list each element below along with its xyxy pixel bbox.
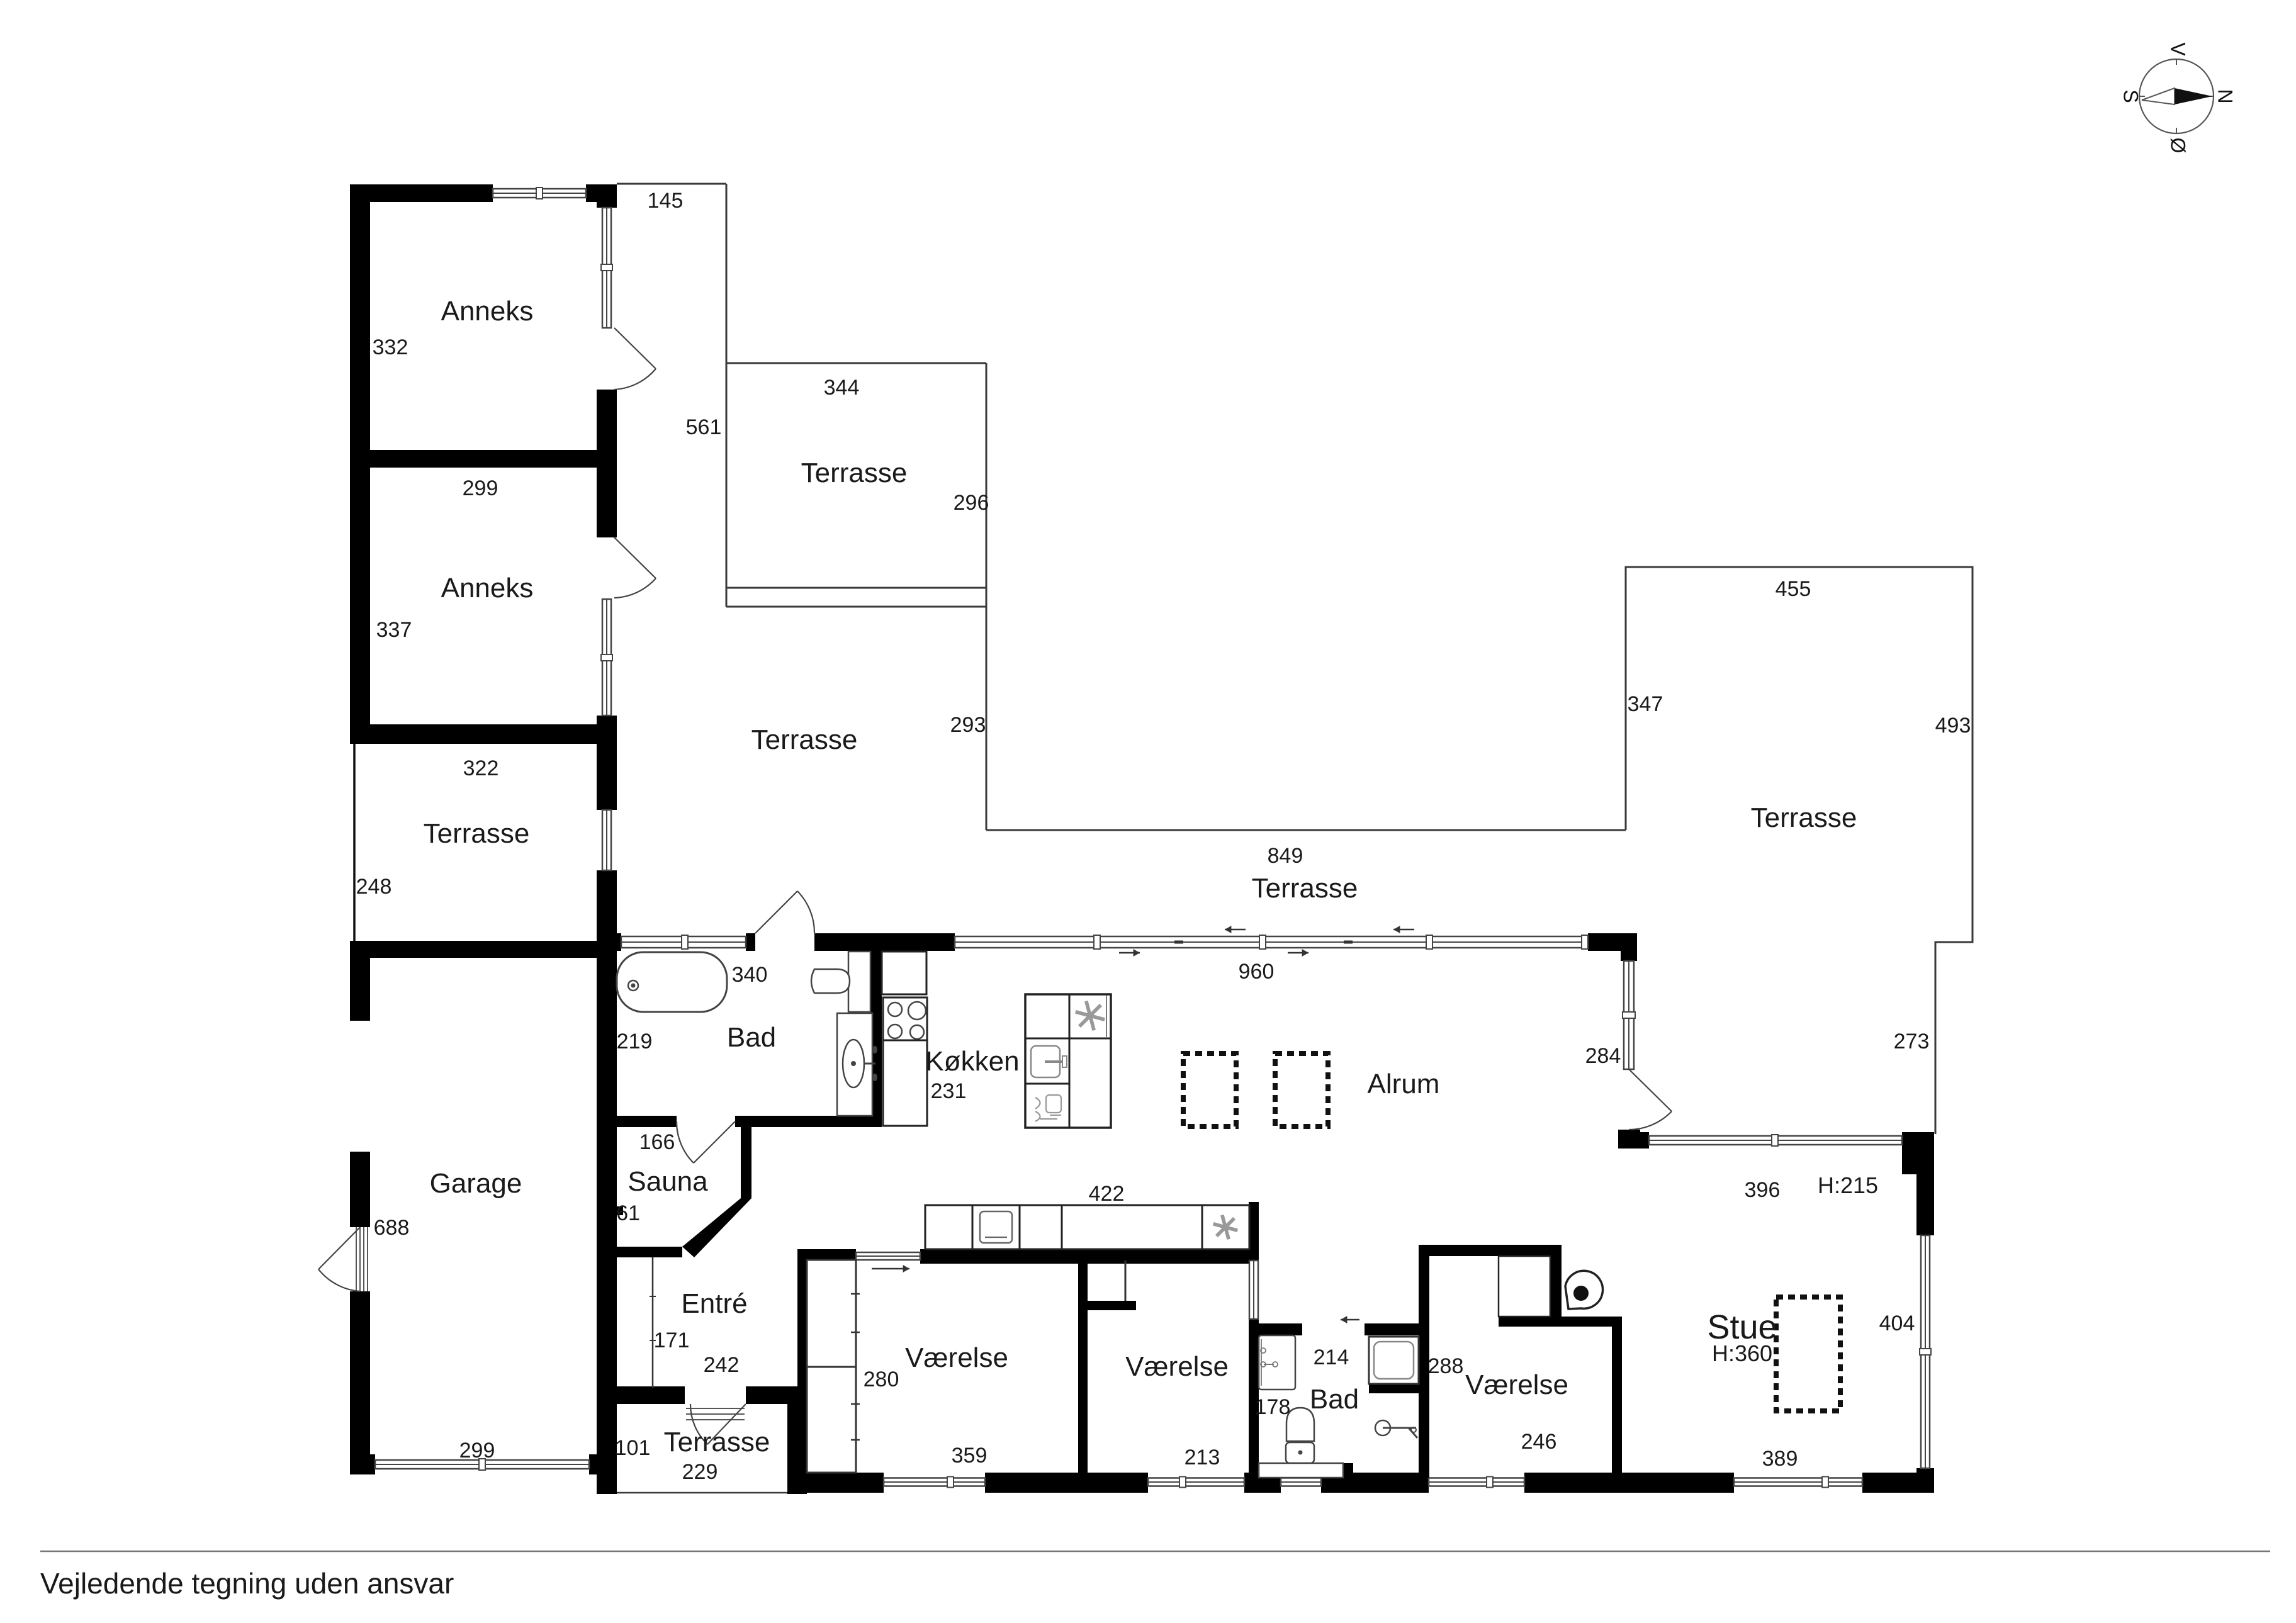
svg-text:Køkken: Køkken: [925, 1046, 1019, 1077]
svg-text:Vejledende tegning uden ansvar: Vejledende tegning uden ansvar: [40, 1567, 454, 1600]
svg-text:299: 299: [463, 476, 498, 500]
svg-text:Terrasse: Terrasse: [664, 1427, 770, 1457]
svg-text:359: 359: [952, 1444, 988, 1468]
svg-text:396: 396: [1745, 1178, 1781, 1202]
svg-text:Anneks: Anneks: [441, 573, 534, 604]
svg-text:688: 688: [374, 1216, 410, 1240]
svg-text:H:360: H:360: [1712, 1340, 1772, 1366]
svg-text:280: 280: [864, 1367, 899, 1391]
svg-text:Alrum: Alrum: [1368, 1069, 1440, 1099]
svg-text:242: 242: [704, 1353, 740, 1377]
svg-text:288: 288: [1428, 1354, 1464, 1378]
svg-text:344: 344: [824, 376, 860, 400]
svg-text:455: 455: [1775, 577, 1811, 601]
svg-text:389: 389: [1762, 1447, 1798, 1471]
svg-text:145: 145: [648, 189, 684, 213]
svg-text:273: 273: [1894, 1030, 1930, 1053]
svg-text:960: 960: [1239, 960, 1275, 984]
svg-text:171: 171: [654, 1328, 690, 1352]
svg-text:S: S: [2120, 89, 2142, 103]
svg-text:101: 101: [615, 1436, 651, 1460]
svg-text:332: 332: [373, 335, 408, 359]
svg-text:Terrasse: Terrasse: [1252, 873, 1358, 904]
svg-text:Værelse: Værelse: [1125, 1351, 1229, 1382]
svg-text:284: 284: [1585, 1044, 1621, 1068]
svg-text:Værelse: Værelse: [1465, 1369, 1568, 1400]
svg-text:219: 219: [617, 1030, 653, 1053]
svg-text:Entré: Entré: [681, 1288, 747, 1319]
svg-text:V: V: [2167, 42, 2190, 56]
svg-text:Ø: Ø: [2167, 138, 2190, 154]
svg-text:347: 347: [1628, 692, 1663, 716]
svg-text:561: 561: [686, 415, 722, 439]
svg-text:Sauna: Sauna: [627, 1166, 708, 1197]
svg-text:Terrasse: Terrasse: [1751, 802, 1857, 833]
svg-text:337: 337: [376, 618, 412, 642]
svg-text:166: 166: [639, 1130, 675, 1154]
svg-text:229: 229: [682, 1460, 718, 1484]
svg-text:H:215: H:215: [1818, 1172, 1878, 1198]
svg-text:849: 849: [1268, 844, 1303, 868]
svg-text:Terrasse: Terrasse: [751, 724, 858, 755]
svg-text:Værelse: Værelse: [905, 1342, 1008, 1373]
svg-text:422: 422: [1089, 1182, 1125, 1206]
svg-text:231: 231: [931, 1079, 967, 1103]
svg-text:340: 340: [732, 963, 768, 987]
svg-text:493: 493: [1935, 714, 1971, 738]
svg-text:246: 246: [1521, 1430, 1557, 1454]
svg-text:N: N: [2214, 89, 2237, 103]
svg-text:299: 299: [459, 1439, 495, 1463]
svg-text:Bad: Bad: [1310, 1384, 1359, 1415]
svg-text:293: 293: [950, 713, 986, 737]
svg-text:Bad: Bad: [727, 1022, 776, 1053]
svg-text:178: 178: [1255, 1395, 1291, 1419]
svg-text:213: 213: [1185, 1446, 1220, 1469]
svg-text:Anneks: Anneks: [441, 296, 534, 327]
svg-text:Terrasse: Terrasse: [801, 458, 908, 488]
svg-text:296: 296: [954, 491, 989, 515]
svg-text:61: 61: [616, 1201, 640, 1225]
svg-text:Garage: Garage: [430, 1168, 522, 1199]
svg-text:Terrasse: Terrasse: [424, 818, 530, 849]
svg-text:322: 322: [463, 756, 499, 780]
svg-text:248: 248: [356, 875, 392, 899]
svg-text:214: 214: [1314, 1345, 1349, 1369]
svg-text:404: 404: [1879, 1311, 1915, 1335]
